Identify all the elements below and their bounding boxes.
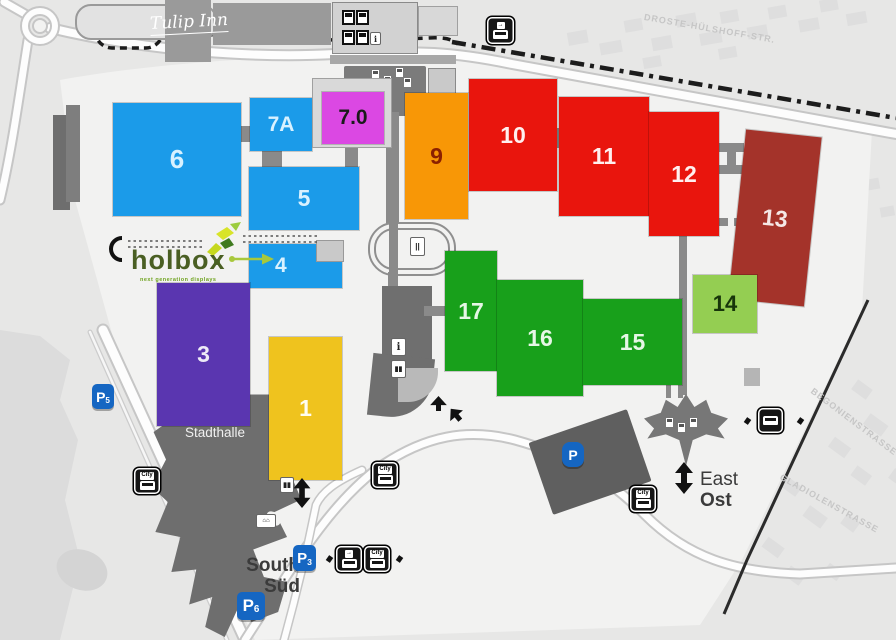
street-label-begonienstrasse: BEGONIENSTRASSE: [809, 386, 896, 457]
entrance-pictogram-icon: [690, 418, 697, 427]
hall-16: 16: [497, 280, 583, 396]
east-label-en: East: [700, 470, 738, 491]
bus-stop-sign-icon: [356, 30, 369, 45]
stop-marker: [326, 555, 334, 563]
city-chip: City: [636, 490, 649, 497]
shuttle-bus-stop-icon: →: [336, 546, 362, 572]
hall-5: 5: [249, 167, 359, 230]
entrance-double-arrow-icon: [292, 478, 312, 508]
entrance-pictogram-icon: [404, 78, 411, 87]
bus-stop-sign-icon: [342, 30, 355, 45]
bus-stop-icon: [758, 408, 783, 433]
bus-glyph: [636, 499, 651, 508]
hall-17-label: 17: [458, 298, 484, 325]
bus-glyph: [342, 559, 357, 568]
connector: [727, 143, 736, 174]
info-icon: i: [391, 338, 406, 356]
central-corridor-segment: [389, 222, 398, 272]
hall-14-label: 14: [713, 291, 737, 317]
fairground-map: i Eingang || i ▮▮ Stadthalle ⌂⌂ P: [0, 0, 896, 640]
hall-6: 6: [113, 103, 241, 216]
hall-4-notch: [316, 240, 344, 262]
entrance-arrow-icon: [430, 396, 447, 411]
parking-sub: 6: [254, 604, 259, 615]
entrance-arrow-icon: [444, 403, 467, 425]
stop-marker: [396, 555, 404, 563]
parking-p6-badge: P6: [237, 592, 265, 620]
city-bus-stop-icon: City: [134, 468, 160, 494]
platform: [330, 55, 456, 64]
tulip-inn-logo: Tulip Inn: [149, 10, 228, 36]
hall-13-label: 13: [761, 203, 789, 233]
hall-10: 10: [469, 79, 557, 191]
connector: [262, 151, 282, 168]
entrance-pictogram-icon: [396, 68, 403, 77]
boundary-line: [724, 300, 868, 614]
bus-glyph: [763, 416, 778, 425]
east-entrance-star: [644, 394, 728, 466]
small-annex: [744, 368, 760, 386]
parking-sub: 3: [307, 557, 312, 567]
east-label-de: Ost: [700, 491, 738, 512]
hall-3: 3: [157, 283, 250, 426]
parking-east-badge: P: [562, 442, 584, 467]
hall-12-label: 12: [671, 161, 697, 188]
hall-14: 14: [693, 275, 757, 333]
hall-15: 15: [583, 299, 682, 385]
city-chip: City: [378, 466, 391, 473]
bus-glyph: [378, 475, 393, 484]
bus-stop-sign-icon: [342, 10, 355, 25]
entrance-double-arrow-icon: [673, 462, 695, 494]
wc-icon: ▮▮: [280, 477, 294, 493]
hall-7a-label: 7A: [268, 113, 295, 137]
city-chip: City: [140, 472, 153, 479]
parking-letter: P: [568, 447, 577, 463]
holbox-tagline: next generation displays: [140, 277, 217, 283]
hall-17: 17: [445, 251, 497, 371]
water-area: [0, 330, 80, 640]
stop-marker: [797, 417, 805, 425]
hall-9-label: 9: [430, 143, 443, 170]
facility-icon: ⌂⌂: [256, 514, 276, 528]
city-bus-stop-icon: City: [364, 546, 390, 572]
hall-1-label: 1: [299, 395, 312, 422]
bus-glyph: [493, 30, 508, 39]
street-label-droste: DROSTE-HÜLSHOFF-STR.: [643, 12, 776, 45]
shuttle-arrow-icon: →: [497, 22, 505, 29]
bus-glyph: [370, 559, 385, 568]
wc-icon: ▮▮: [391, 360, 406, 378]
stop-marker: [744, 417, 752, 425]
holbox-logo-text: holbox: [131, 245, 226, 276]
shuttle-bus-stop-icon: →: [487, 17, 514, 44]
parking-letter: P: [297, 550, 307, 567]
north-building: [213, 3, 331, 45]
entrance-pictogram-icon: [666, 418, 673, 427]
hall-15-label: 15: [620, 329, 646, 356]
parking-p3-badge: P3: [293, 545, 316, 571]
entrance-pictogram-icon: [678, 423, 685, 432]
bus-glyph: [140, 481, 155, 490]
hall-5-label: 5: [298, 185, 311, 212]
east-label: East Ost: [700, 470, 738, 512]
city-bus-stop-icon: City: [630, 486, 656, 512]
neighborhood-blocks-north: [566, 0, 869, 85]
city-bus-stop-icon: City: [372, 462, 398, 488]
street-label-gladiolenstrasse: GLADIOLENSTRASSE: [778, 472, 880, 535]
hall-7a: 7A: [250, 98, 312, 151]
hall-7-0-label: 7.0: [338, 106, 367, 130]
hall-9: 9: [405, 93, 468, 219]
shuttle-arrow-icon: →: [345, 550, 353, 557]
station-annex: [418, 6, 458, 36]
west-building-2: [66, 105, 80, 202]
hall-4-label: 4: [275, 254, 287, 278]
hall-11: 11: [559, 97, 649, 216]
info-icon: i: [370, 32, 381, 45]
hall-11-label: 11: [592, 143, 616, 170]
hall-6-label: 6: [170, 144, 184, 175]
hall-12: 12: [649, 112, 719, 236]
hall-16-label: 16: [527, 325, 553, 352]
footpath-end-marker: [111, 238, 122, 260]
hall-1: 1: [269, 337, 342, 480]
parking-p5-badge: P5: [92, 384, 114, 409]
connector: [345, 146, 358, 168]
hall-3-label: 3: [197, 341, 210, 368]
bus-stop-sign-icon: [356, 10, 369, 25]
hall-7-0: 7.0: [322, 92, 384, 144]
parking-letter: P: [96, 389, 105, 405]
south-label-en: South: [240, 556, 300, 577]
service-building: [382, 286, 432, 364]
connector: [718, 218, 728, 226]
parking-sub: 5: [105, 396, 110, 405]
monument-icon: ||: [410, 237, 425, 256]
city-chip: City: [370, 550, 383, 557]
stadthalle-label: Stadthalle: [185, 425, 245, 440]
hall-10-label: 10: [500, 122, 526, 149]
parking-letter: P: [243, 596, 254, 616]
